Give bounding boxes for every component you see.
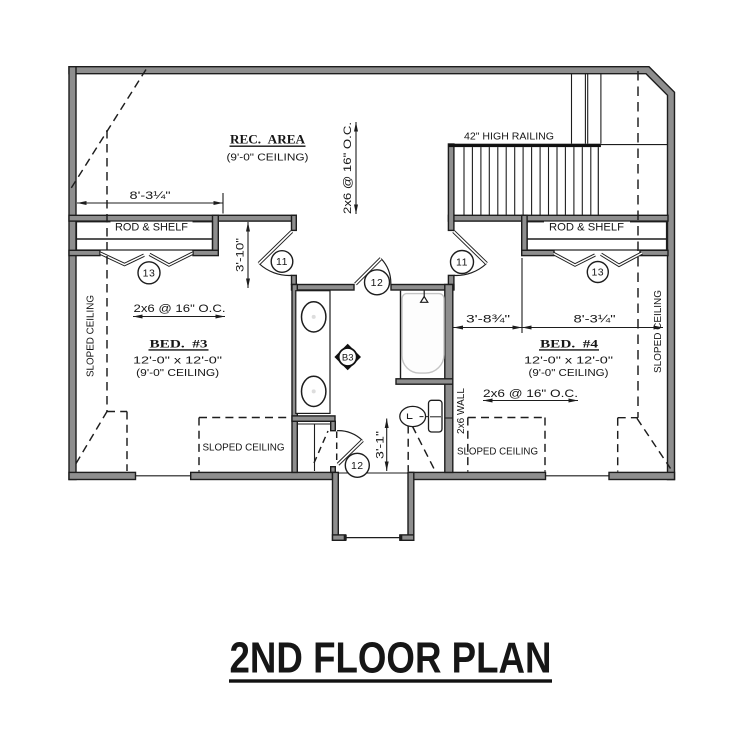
svg-text:(9'-0" CEILING): (9'-0" CEILING) bbox=[529, 367, 609, 379]
svg-text:ROD & SHELF: ROD & SHELF bbox=[115, 222, 188, 234]
svg-text:(9'-0" CEILING): (9'-0" CEILING) bbox=[136, 367, 219, 379]
svg-text:12'-0" x 12'-0": 12'-0" x 12'-0" bbox=[133, 356, 223, 367]
svg-text:11: 11 bbox=[276, 256, 288, 268]
svg-text:SLOPED CEILING: SLOPED CEILING bbox=[203, 442, 285, 454]
svg-text:SLOPED CEILING: SLOPED CEILING bbox=[457, 446, 538, 458]
svg-text:13: 13 bbox=[591, 267, 604, 279]
svg-text:REC. AREA: REC. AREA bbox=[230, 133, 305, 147]
svg-text:8'-3¼": 8'-3¼" bbox=[130, 190, 171, 202]
svg-text:BED. #3: BED. #3 bbox=[150, 337, 208, 351]
svg-text:12: 12 bbox=[351, 460, 364, 472]
svg-text:BED. #4: BED. #4 bbox=[540, 337, 598, 351]
svg-text:12: 12 bbox=[371, 277, 384, 289]
svg-text:ROD & SHELF: ROD & SHELF bbox=[549, 222, 624, 234]
svg-text:13: 13 bbox=[143, 267, 156, 279]
svg-text:3'-1": 3'-1" bbox=[375, 431, 387, 459]
svg-text:2x6 @ 16" O.C.: 2x6 @ 16" O.C. bbox=[342, 122, 354, 214]
svg-text:12'-0" x 12'-0": 12'-0" x 12'-0" bbox=[524, 356, 614, 367]
svg-text:2x6 @ 16" O.C.: 2x6 @ 16" O.C. bbox=[134, 303, 226, 315]
svg-text:2x6 WALL: 2x6 WALL bbox=[455, 388, 467, 434]
svg-text:B3: B3 bbox=[342, 352, 354, 363]
svg-text:SLOPED CEILING: SLOPED CEILING bbox=[652, 290, 664, 373]
svg-text:3'-10": 3'-10" bbox=[235, 238, 247, 272]
svg-text:8'-3¼": 8'-3¼" bbox=[574, 314, 616, 326]
svg-text:3'-8¾": 3'-8¾" bbox=[466, 314, 510, 326]
svg-text:2x6 @ 16" O.C.: 2x6 @ 16" O.C. bbox=[483, 388, 578, 400]
svg-text:2ND FLOOR PLAN: 2ND FLOOR PLAN bbox=[230, 634, 552, 683]
svg-text:11: 11 bbox=[456, 257, 468, 269]
svg-text:42" HIGH RAILING: 42" HIGH RAILING bbox=[464, 132, 554, 143]
svg-text:(9'-0" CEILING): (9'-0" CEILING) bbox=[227, 151, 309, 163]
svg-text:SLOPED CEILING: SLOPED CEILING bbox=[85, 295, 97, 377]
